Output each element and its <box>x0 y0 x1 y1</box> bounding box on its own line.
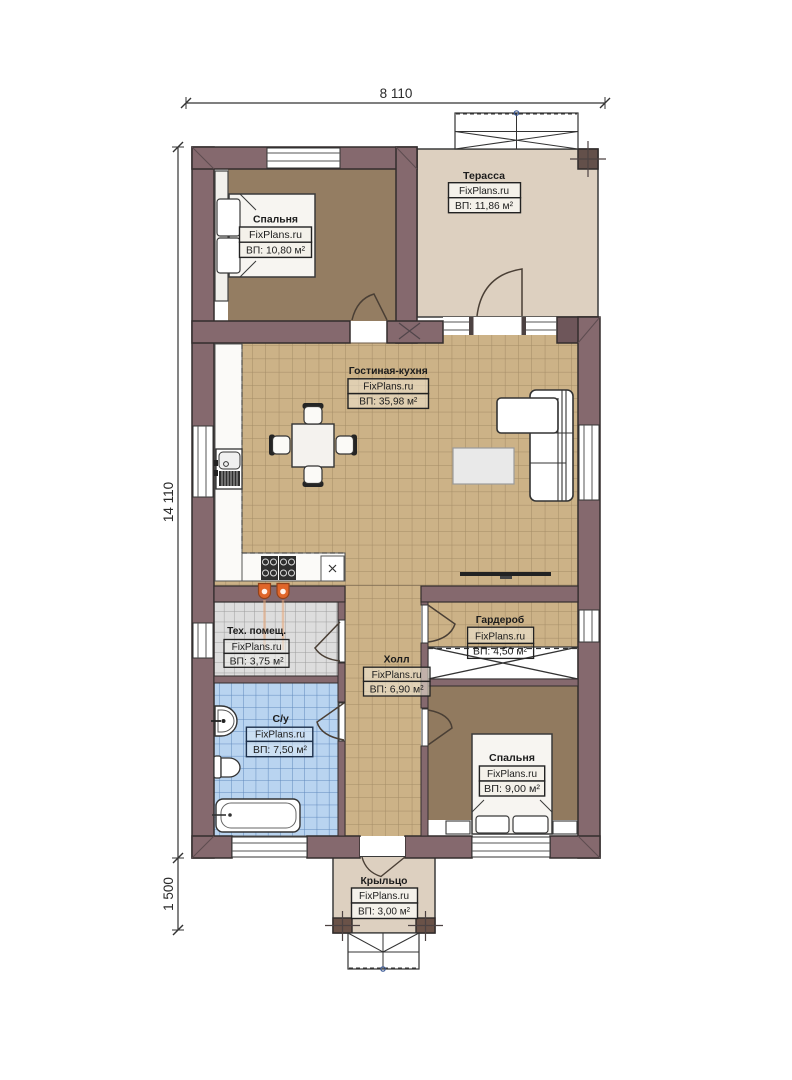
svg-text:FixPlans.ru: FixPlans.ru <box>249 229 302 241</box>
svg-text:ВП: 35,98 м²: ВП: 35,98 м² <box>359 395 417 407</box>
svg-text:Спальня: Спальня <box>253 214 298 226</box>
svg-text:Спальня: Спальня <box>489 752 535 764</box>
svg-text:FixPlans.ru: FixPlans.ru <box>232 641 282 653</box>
svg-text:ВП: 7,50 м²: ВП: 7,50 м² <box>253 744 307 756</box>
svg-text:Гостиная-кухня: Гостиная-кухня <box>349 365 428 377</box>
svg-text:С/у: С/у <box>273 713 290 725</box>
svg-text:1 500: 1 500 <box>161 877 176 911</box>
svg-text:Терасса: Терасса <box>463 170 505 182</box>
svg-text:Тех. помещ.: Тех. помещ. <box>227 625 286 637</box>
svg-text:Крыльцо: Крыльцо <box>361 875 408 887</box>
svg-text:ВП: 4,50 м²: ВП: 4,50 м² <box>473 646 527 658</box>
svg-text:FixPlans.ru: FixPlans.ru <box>372 669 422 681</box>
svg-text:14 110: 14 110 <box>161 482 176 522</box>
svg-text:ВП: 3,75 м²: ВП: 3,75 м² <box>230 655 284 667</box>
svg-text:ВП: 11,86 м²: ВП: 11,86 м² <box>455 200 513 212</box>
svg-text:ВП: 3,00 м²: ВП: 3,00 м² <box>358 906 410 918</box>
svg-text:Холл: Холл <box>384 654 410 666</box>
svg-text:FixPlans.ru: FixPlans.ru <box>255 729 305 741</box>
svg-text:FixPlans.ru: FixPlans.ru <box>363 381 413 393</box>
svg-text:Гардероб: Гардероб <box>476 614 525 626</box>
svg-text:8 110: 8 110 <box>380 86 413 101</box>
svg-text:FixPlans.ru: FixPlans.ru <box>475 630 525 642</box>
svg-text:ВП: 9,00 м²: ВП: 9,00 м² <box>484 783 541 795</box>
svg-text:ВП: 10,80 м²: ВП: 10,80 м² <box>246 245 305 257</box>
svg-text:FixPlans.ru: FixPlans.ru <box>487 768 537 780</box>
svg-text:FixPlans.ru: FixPlans.ru <box>359 890 409 902</box>
svg-text:ВП: 6,90 м²: ВП: 6,90 м² <box>370 683 424 695</box>
svg-text:FixPlans.ru: FixPlans.ru <box>459 185 509 197</box>
